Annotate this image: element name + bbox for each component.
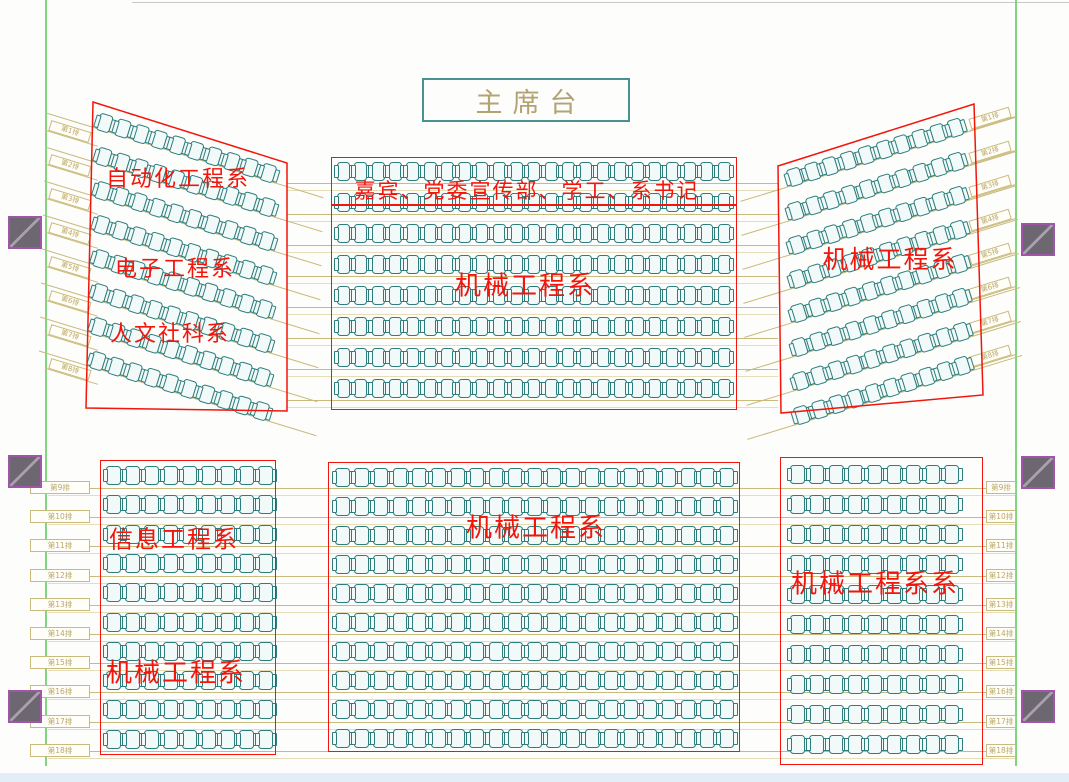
seat [952,321,971,342]
page-bottom-strip [0,773,1069,782]
seat [948,185,967,206]
seat [254,332,273,353]
pillar-marker [8,216,42,249]
row-number-label: 第1排 [968,107,1011,130]
seat [253,366,272,387]
auditorium-seating-chart: 主席台 第1排第2排第3排第4排第5排第6排第7排第8排第1排第2排第3排第4排… [0,0,1069,782]
row-number-label: 第11排 [30,539,90,552]
section-label: 机械工程系 [106,653,246,690]
seat [255,298,274,319]
section-label: 机械工程系 [466,508,606,545]
row-number-label: 第7排 [48,324,91,347]
row-number-label: 第9排 [986,481,1016,494]
row-number-label: 第12排 [30,569,90,582]
row-guide-stub: 第5排 [966,241,1016,267]
row-guide-stub: 第4排 [966,207,1016,233]
row-number-label: 第13排 [30,598,90,611]
section-label: 机械工程系系 [791,564,959,601]
section-label: 电子工程系 [115,251,235,283]
row-guide-stub: 第2排 [966,139,1016,165]
row-number-label: 第10排 [30,510,90,523]
pillar-marker [1021,456,1055,489]
row-number-label: 第18排 [986,744,1016,757]
section-outline-lower-right [780,457,983,765]
row-number-label: 第18排 [30,744,90,757]
stage-box: 主席台 [422,78,630,122]
seat [252,400,271,421]
row-number-label: 第3排 [48,188,91,211]
row-number-label: 第6排 [48,290,91,313]
row-number-label: 第16排 [986,685,1016,698]
row-number-label: 第15排 [30,656,90,669]
seat [258,196,277,217]
section-label: 机械工程系 [822,240,957,276]
row-number-label: 第2排 [48,154,91,177]
section-outline-lower-center [328,462,740,752]
row-number-label: 第10排 [986,510,1016,523]
seat [256,264,275,285]
pillar-marker [8,455,42,488]
section-label: 自动化工程系 [106,161,250,193]
seat [947,151,966,172]
seat [949,219,968,240]
section-label: 嘉宾、党委宣传部、学工、系书记 [355,175,700,205]
row-number-label: 第12排 [986,569,1016,582]
section-label: 机械工程系 [455,266,595,303]
row-number-label: 第5排 [48,256,91,279]
row-guide-line [747,355,1022,440]
row-number-label: 第11排 [986,539,1016,552]
hall-left-wall-line [45,0,47,766]
seat [257,230,276,251]
row-guide-stub: 第6排 [966,275,1016,301]
section-outline-lower-left [100,460,276,755]
row-guide-line [39,350,317,436]
row-number-label: 第14排 [986,627,1016,640]
row-number-label: 第15排 [986,656,1016,669]
pillar-marker [1021,690,1055,723]
row-number-label: 第2排 [968,141,1011,164]
stage-label: 主席台 [466,81,587,120]
seat [951,287,970,308]
section-label: 人文社科系 [110,316,230,348]
pillar-marker [8,690,42,723]
row-number-label: 第14排 [30,627,90,640]
section-label: 信息工程系 [109,520,239,555]
seat [946,117,965,138]
seat [953,355,972,376]
pillar-marker [1021,223,1055,256]
seat [259,162,278,183]
row-guide-stub: 第3排 [966,173,1016,199]
row-number-label: 第8排 [48,358,91,381]
row-number-label: 第13排 [986,598,1016,611]
row-number-label: 第4排 [48,222,91,245]
row-number-label: 第17排 [986,715,1016,728]
page-top-line [132,2,1069,3]
